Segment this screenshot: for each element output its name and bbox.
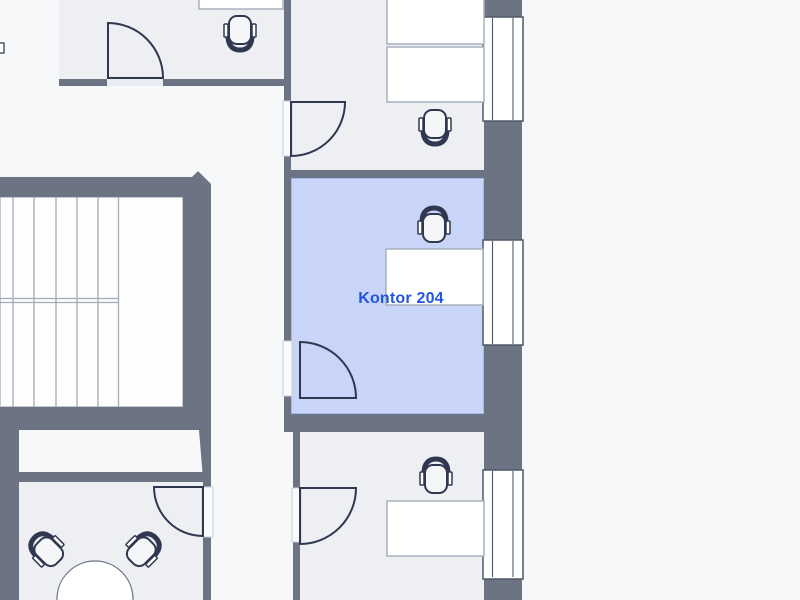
desk — [387, 0, 484, 44]
floor-plan-canvas[interactable]: Kontor 204 — [0, 0, 800, 600]
office-chair — [419, 110, 451, 144]
window — [483, 470, 523, 579]
wall-kontor-bottom — [284, 414, 484, 432]
wall-bottom-left-exterior — [0, 430, 19, 600]
wall-topleft-room-bottom — [59, 79, 291, 86]
window-stub-left-edge — [0, 43, 4, 53]
wall-stairwell-top — [0, 171, 211, 197]
wall-meeting-room-top — [19, 472, 203, 482]
office-chair-kontor-204 — [418, 208, 450, 242]
wall-kontor-top — [284, 170, 484, 178]
floor-plan-viewport: Kontor 204 — [0, 0, 800, 600]
office-chair — [420, 459, 452, 493]
desk — [387, 47, 484, 102]
staircase — [0, 197, 183, 407]
room-label-kontor-204: Kontor 204 — [358, 290, 444, 307]
window — [483, 17, 523, 121]
wall-stairwell-right — [183, 197, 211, 407]
door-opening — [107, 79, 163, 86]
wall-stairwell-bottom — [0, 407, 211, 430]
desk — [387, 501, 484, 556]
door-opening — [283, 341, 292, 396]
desk — [199, 0, 283, 9]
office-chair — [224, 16, 256, 50]
window — [483, 240, 523, 345]
